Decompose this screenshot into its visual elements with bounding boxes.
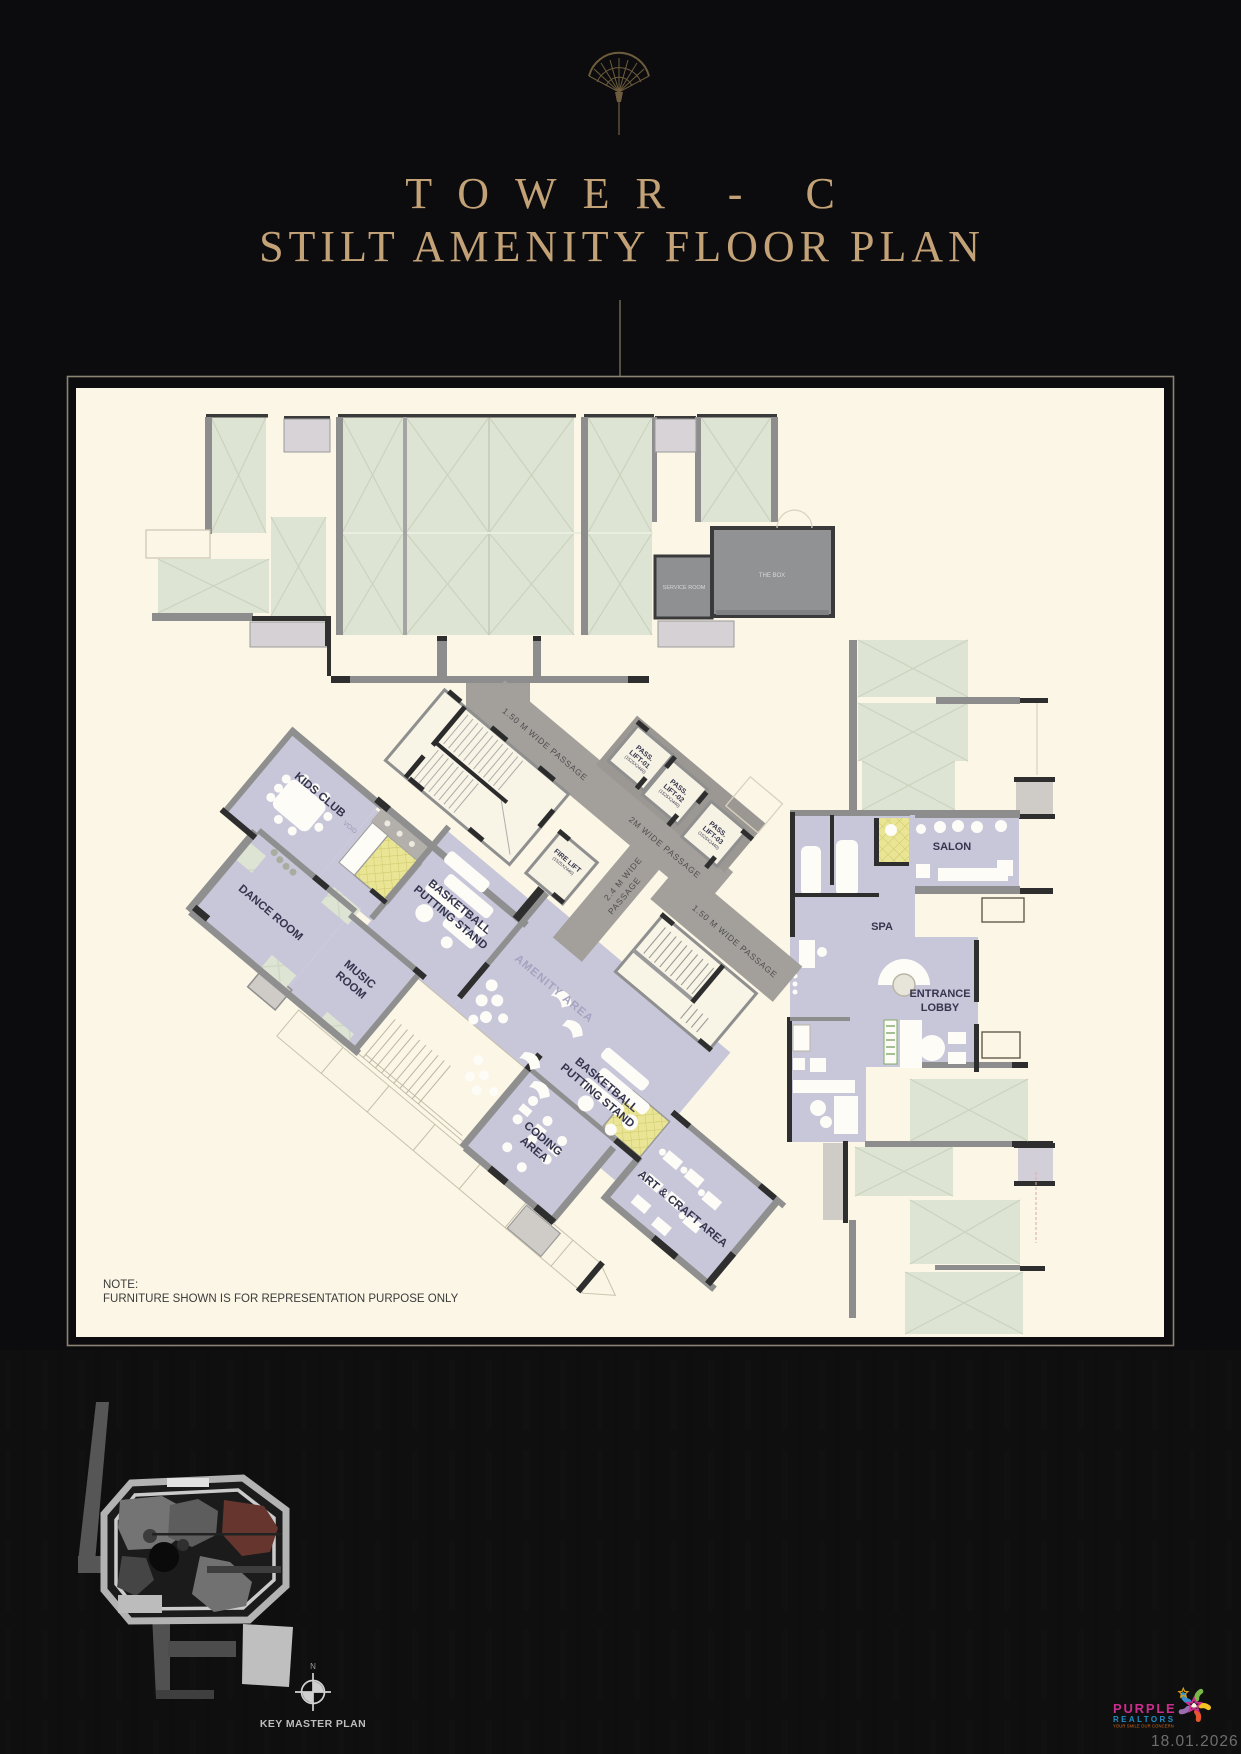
svg-text:SPA: SPA [871, 921, 893, 933]
svg-text:TOWER - C: TOWER - C [405, 169, 861, 218]
svg-text:ENTRANCE: ENTRANCE [909, 988, 970, 1000]
svg-text:18.01.2026: 18.01.2026 [1151, 1733, 1239, 1750]
svg-text:SALON: SALON [933, 841, 972, 853]
svg-text:PURPLE: PURPLE [1113, 1701, 1177, 1716]
svg-text:KEY MASTER PLAN: KEY MASTER PLAN [260, 1718, 366, 1730]
svg-text:SERVICE ROOM: SERVICE ROOM [663, 585, 706, 591]
svg-text:NOTE:: NOTE: [103, 1279, 138, 1291]
svg-text:YOUR SMILE OUR CONCERN: YOUR SMILE OUR CONCERN [1113, 1724, 1174, 1729]
svg-text:LOBBY: LOBBY [921, 1002, 960, 1014]
svg-text:FURNITURE SHOWN IS FOR REPRESE: FURNITURE SHOWN IS FOR REPRESENTATION PU… [103, 1293, 459, 1305]
svg-text:N: N [310, 1662, 316, 1671]
svg-text:STILT AMENITY FLOOR PLAN: STILT AMENITY FLOOR PLAN [259, 222, 985, 271]
svg-text:THE BOX: THE BOX [759, 573, 785, 579]
